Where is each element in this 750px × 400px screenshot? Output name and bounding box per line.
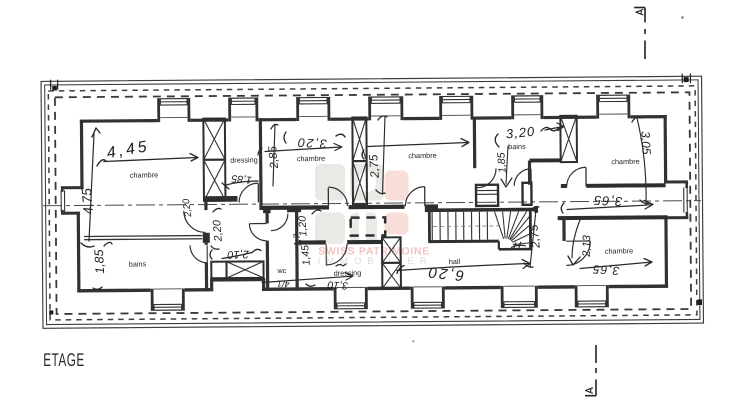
- svg-text:bains: bains: [508, 142, 526, 151]
- svg-text:2,13: 2,13: [581, 234, 593, 257]
- svg-text:2,75: 2,75: [366, 154, 382, 180]
- svg-text:1,85: 1,85: [92, 249, 107, 274]
- svg-text:3,10: 3,10: [327, 278, 348, 291]
- svg-text:1,20: 1,20: [296, 215, 309, 236]
- svg-text:hall: hall: [449, 257, 461, 266]
- svg-text:3,20: 3,20: [505, 124, 536, 142]
- svg-text:bains: bains: [129, 259, 147, 268]
- svg-text:ETAGE: ETAGE: [43, 349, 85, 370]
- svg-text:4,45: 4,45: [105, 138, 150, 162]
- svg-text:2,20: 2,20: [211, 219, 225, 243]
- svg-text:1,7: 1,7: [292, 233, 303, 247]
- svg-text:1,85: 1,85: [231, 172, 253, 186]
- svg-text:chambre: chambre: [611, 157, 640, 166]
- svg-text:3,65: 3,65: [592, 262, 620, 278]
- svg-text:chambre: chambre: [605, 246, 634, 255]
- svg-text:2,20: 2,20: [181, 197, 195, 219]
- svg-text:wc: wc: [276, 266, 286, 275]
- svg-text:I M M O B I L I E R: I M M O B I L I E R: [318, 256, 429, 267]
- svg-text:chambre: chambre: [297, 154, 326, 163]
- svg-text:chambre: chambre: [408, 151, 437, 160]
- svg-text:chambre: chambre: [130, 170, 159, 179]
- svg-text:1,45: 1,45: [299, 244, 313, 266]
- svg-text:dressing: dressing: [230, 155, 258, 164]
- svg-text:4,75: 4,75: [79, 187, 96, 215]
